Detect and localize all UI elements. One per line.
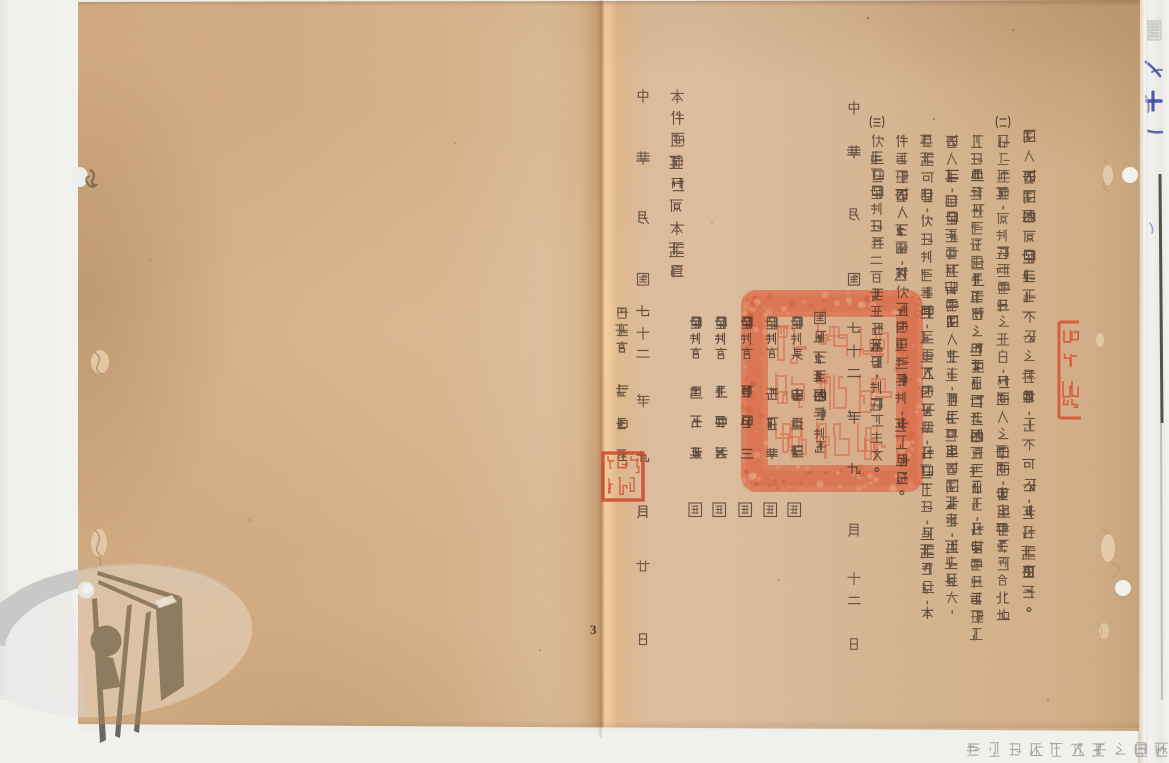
svg-text:3: 3 bbox=[590, 622, 597, 637]
